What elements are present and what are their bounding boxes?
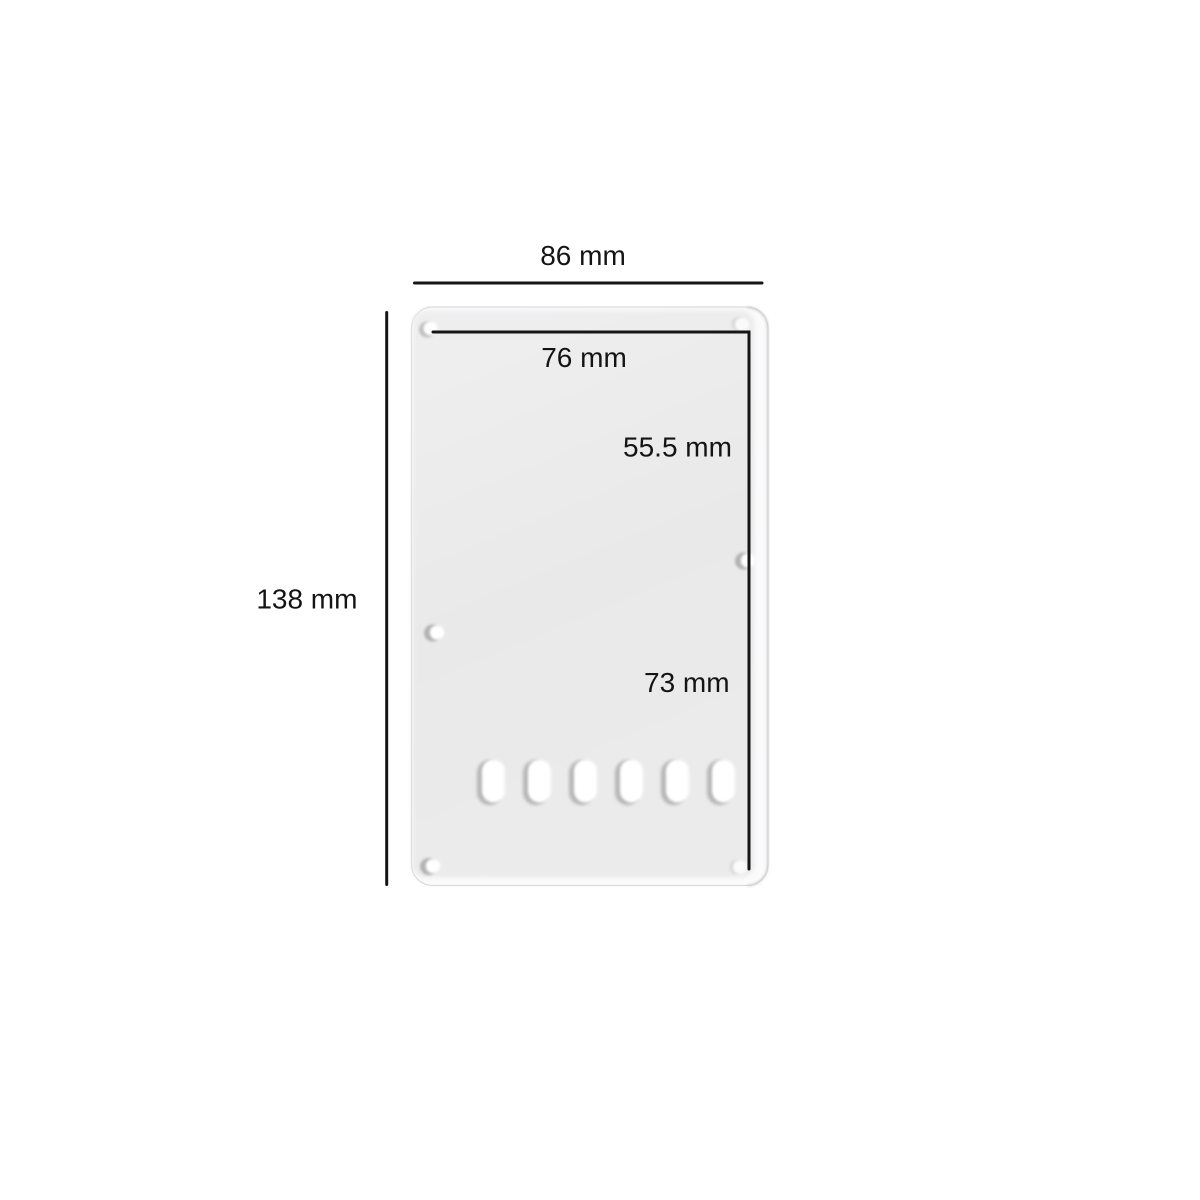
svg-text:76 mm: 76 mm (541, 342, 627, 373)
svg-text:73 mm: 73 mm (644, 667, 730, 698)
svg-text:86 mm: 86 mm (540, 240, 626, 271)
svg-text:138 mm: 138 mm (256, 584, 357, 615)
svg-text:55.5 mm: 55.5 mm (623, 431, 732, 462)
